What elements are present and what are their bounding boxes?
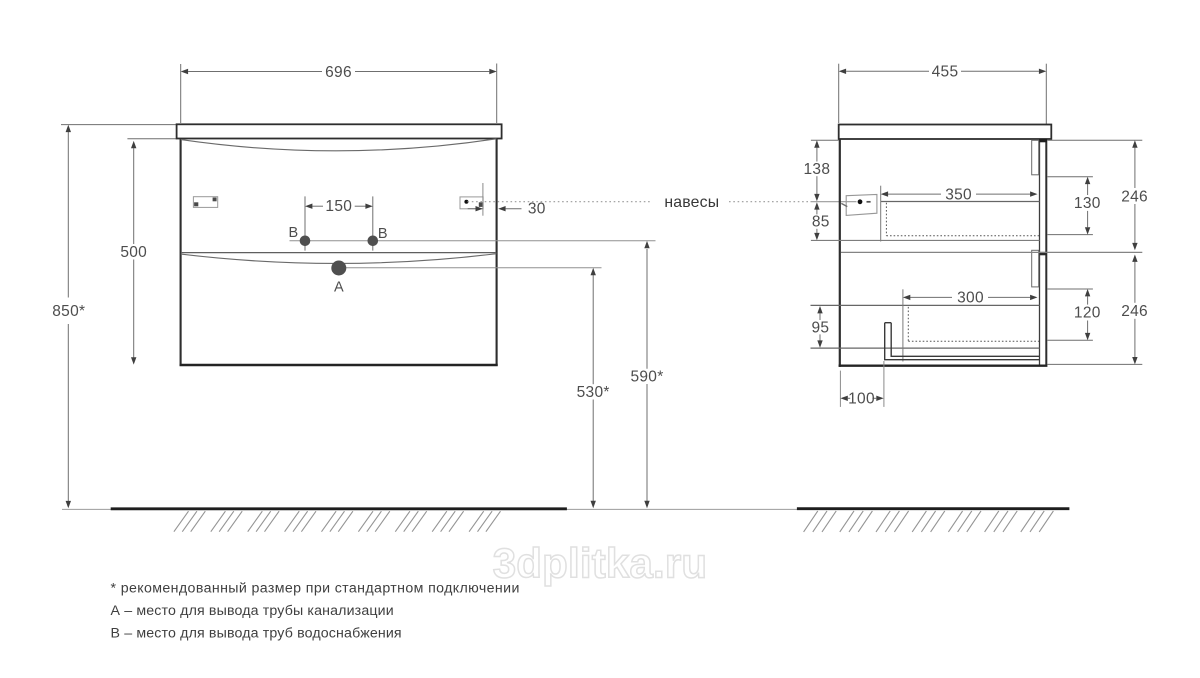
svg-text:100: 100 — [848, 391, 875, 408]
svg-text:138: 138 — [804, 161, 831, 178]
svg-text:3dplitka.ru: 3dplitka.ru — [493, 540, 708, 587]
svg-text:30: 30 — [528, 200, 546, 217]
svg-text:* рекомендованный размер при с: * рекомендованный размер при стандартном… — [111, 581, 520, 597]
svg-text:95: 95 — [811, 320, 829, 337]
svg-text:850*: 850* — [52, 303, 85, 320]
svg-text:350: 350 — [945, 186, 972, 203]
svg-text:300: 300 — [957, 290, 984, 307]
svg-text:246: 246 — [1121, 303, 1148, 320]
svg-text:455: 455 — [932, 64, 959, 81]
svg-text:85: 85 — [812, 214, 830, 231]
svg-text:A: A — [334, 280, 344, 296]
svg-text:B: B — [289, 225, 299, 241]
svg-text:В – место для вывода труб водо: В – место для вывода труб водоснабжения — [111, 625, 402, 641]
svg-text:B: B — [378, 226, 388, 242]
svg-text:590*: 590* — [630, 369, 663, 386]
svg-text:А – место для вывода трубы кан: А – место для вывода трубы канализации — [111, 603, 394, 619]
svg-text:120: 120 — [1074, 305, 1101, 322]
svg-text:246: 246 — [1121, 188, 1148, 205]
svg-text:500: 500 — [120, 244, 147, 261]
svg-text:150: 150 — [325, 198, 352, 215]
svg-text:696: 696 — [325, 64, 352, 81]
svg-text:130: 130 — [1074, 195, 1101, 212]
svg-text:530*: 530* — [577, 384, 610, 401]
svg-text:навесы: навесы — [664, 194, 719, 211]
